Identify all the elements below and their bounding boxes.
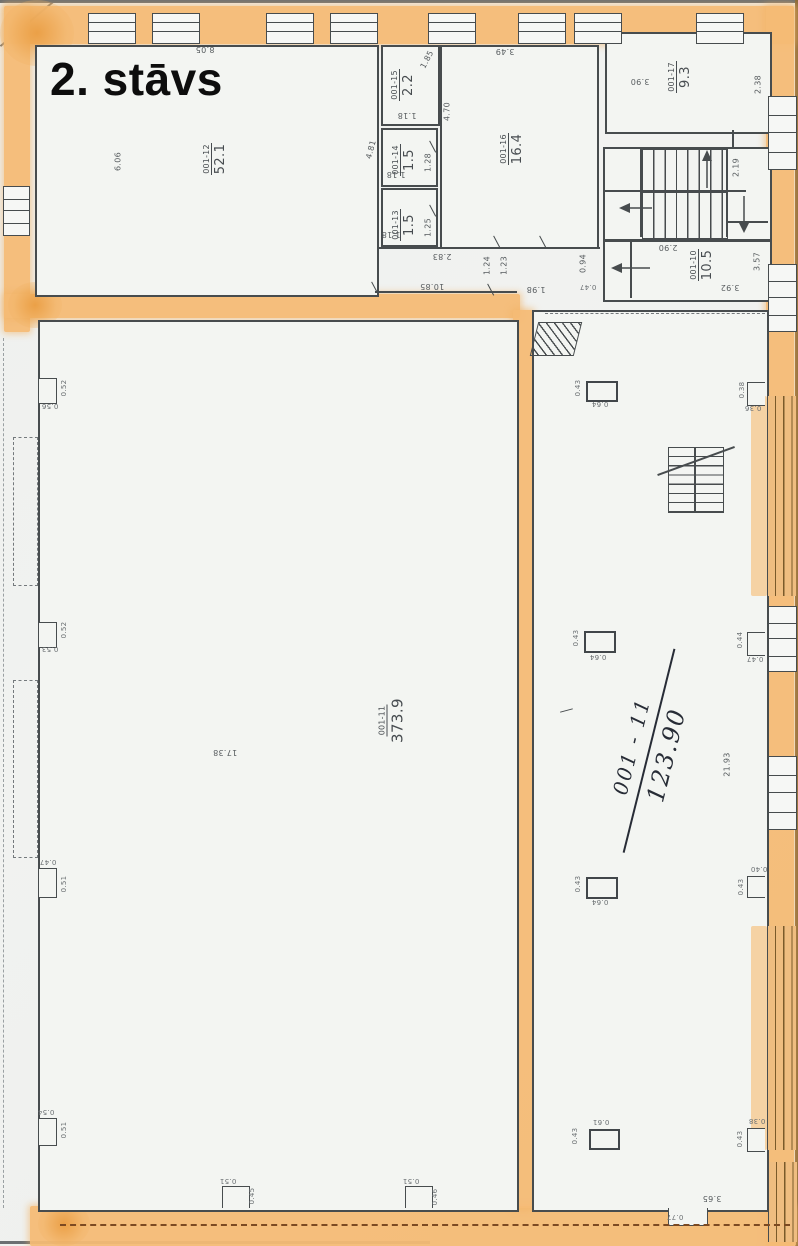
wall-niche [747, 1128, 765, 1152]
orange-wall-mid-horizontal [4, 294, 520, 318]
window-symbol [768, 264, 797, 332]
pier-dim: 0.45 [248, 1184, 256, 1208]
dash-dot-line [545, 313, 765, 314]
room-label-001-11: 001-11 373.9 [378, 699, 407, 743]
dim-label: 2.38 [754, 70, 763, 100]
pier-dim: 0.51 [399, 1177, 423, 1185]
niche-dim: 0.47 [36, 858, 60, 866]
niche-dim: 0.54 [34, 1108, 58, 1116]
room-id: 001-16 [499, 133, 509, 165]
window-symbol [152, 13, 200, 44]
outer-dashed-line [3, 338, 4, 1208]
column [589, 1129, 620, 1150]
room-id: 001-10 [689, 249, 699, 281]
window-symbol [3, 186, 30, 236]
dim-label: 0.94 [579, 249, 588, 279]
dashed-opening [13, 680, 38, 858]
dim-label: 3.90 [625, 77, 655, 86]
window-symbol [768, 96, 797, 170]
column-dim: 0.43 [574, 376, 582, 400]
wall-pier [222, 1186, 250, 1208]
wall-niche [747, 382, 765, 406]
column-dim: 0.43 [572, 626, 580, 650]
room-label-001-13: 001-13 1.5 [391, 203, 417, 247]
dim-label: 17.38 [210, 748, 240, 757]
orange-inner-strip [751, 396, 767, 596]
niche-dim: 0.52 [60, 618, 68, 642]
niche-dim: 0.38 [738, 378, 746, 402]
column-dim: 0.64 [588, 898, 612, 906]
window-symbol [768, 756, 797, 830]
niche-dim: 0.53 [38, 645, 62, 653]
pier-dim: 0.51 [216, 1177, 240, 1185]
column-dim: 0.64 [588, 400, 612, 408]
dim-label: 0.47 [576, 283, 600, 291]
window-symbol [428, 13, 476, 44]
door-arrow-icon [610, 262, 652, 274]
window-symbol [330, 13, 378, 44]
dim-label: 1.18 [392, 111, 422, 120]
niche-dim: 0.47 [743, 655, 767, 663]
room-label-001-15: 001-15 2.2 [390, 63, 416, 107]
wall-pier [405, 1186, 433, 1208]
wall-niche [747, 876, 765, 898]
dim-label: 2.19 [732, 153, 741, 183]
stair-up-arrow-icon [700, 150, 714, 190]
corridor-wall-line [378, 247, 600, 249]
dim-label: 3.57 [753, 247, 762, 277]
niche-dim: 0.52 [60, 376, 68, 400]
hatched-wall-section [768, 1162, 797, 1242]
dim-label: 0.77 [663, 1213, 687, 1221]
room-area: 16.4 [510, 134, 525, 165]
dim-label: 1.18 [376, 230, 406, 239]
column-dim: 0.64 [586, 653, 610, 661]
dim-label: 1.98 [521, 285, 551, 294]
dim-label: 1.18 [381, 170, 411, 179]
wall-niche [39, 1118, 57, 1146]
dim-label: 3.49 [490, 47, 520, 56]
dim-label: 1.23 [500, 251, 509, 281]
niche-dim: 0.44 [736, 628, 744, 652]
room-area: 373.9 [389, 698, 407, 743]
direction-arrow-icon [618, 202, 654, 214]
room-label-001-12: 001-12 52.1 [202, 137, 228, 181]
room-area: 2.2 [401, 74, 416, 96]
floor-plan-scan: 2. stāvs 001-12 52.1 001-15 2.2 001-14 1… [0, 0, 798, 1246]
room-id: 001-15 [390, 69, 400, 101]
dim-label: 6.06 [114, 147, 123, 177]
wall-niche [747, 632, 765, 656]
window-symbol [88, 13, 136, 44]
window-symbol [574, 13, 622, 44]
room-area: 52.1 [213, 144, 228, 175]
room-id: 001-17 [667, 61, 677, 93]
hatched-stair-symbol [530, 322, 582, 356]
window-symbol [518, 13, 566, 44]
niche-dim: 0.56 [38, 402, 62, 410]
column-dim: 0.43 [574, 872, 582, 896]
dim-label: 1.24 [483, 251, 492, 281]
wall-niche [39, 378, 57, 404]
niche-dim: 0.43 [737, 875, 745, 899]
stair-treads-upper [642, 149, 728, 192]
wall-niche [39, 868, 57, 898]
niche-dim: 0.51 [60, 872, 68, 896]
column-dim: 0.43 [571, 1124, 579, 1148]
hatched-wall-section [767, 396, 796, 596]
dim-label: 2.83 [427, 252, 457, 261]
stair-down-arrow-icon [737, 196, 751, 234]
column [586, 381, 618, 402]
column [584, 631, 616, 653]
niche-dim: 0.40 [747, 865, 771, 873]
niche-dim: 0.43 [736, 1127, 744, 1151]
window-symbol [266, 13, 314, 44]
dim-label: 1.28 [424, 148, 433, 178]
scan-edge-top [0, 0, 798, 3]
room-area: 10.5 [700, 250, 715, 281]
niche-dim: 0.38 [745, 1117, 769, 1125]
niche-dim: 0.36 [741, 404, 765, 412]
room-area: 1.5 [402, 149, 417, 171]
dashed-opening [13, 437, 38, 586]
dim-label: 3.92 [715, 283, 745, 292]
dim-label: 8.05 [190, 45, 220, 54]
window-symbol [768, 606, 797, 672]
dim-label: 2.90 [653, 243, 683, 252]
dim-label: 3.65 [697, 1194, 727, 1203]
wall-connector-line [732, 130, 734, 147]
column-dim: 0.61 [589, 1118, 613, 1126]
dim-label: 4.70 [443, 97, 452, 127]
room-id: 001-12 [202, 143, 212, 175]
column [586, 877, 618, 899]
dim-label: 1.25 [424, 213, 433, 243]
stair-treads-lower [642, 192, 728, 239]
wall-centerline-dashed [60, 1224, 790, 1226]
room-label-001-10: 001-10 10.5 [689, 243, 715, 287]
hatched-wall-section [767, 926, 796, 1150]
pier-dim: 0.46 [431, 1185, 439, 1209]
window-symbol [696, 13, 744, 44]
room-id: 001-11 [378, 705, 388, 737]
room-label-001-16: 001-16 16.4 [499, 127, 525, 171]
dim-label: 10.85 [417, 282, 447, 291]
dim-label: 21.93 [723, 750, 732, 780]
room-label-001-17: 001-17 9.3 [667, 55, 693, 99]
floor-title: 2. stāvs [50, 52, 223, 106]
corridor-wall-line [375, 291, 517, 293]
hall-left-outline [38, 320, 519, 1212]
niche-dim: 0.51 [60, 1118, 68, 1142]
room-area: 9.3 [678, 66, 693, 88]
small-stair-midline [694, 447, 696, 511]
small-stair-symbol [668, 447, 724, 513]
